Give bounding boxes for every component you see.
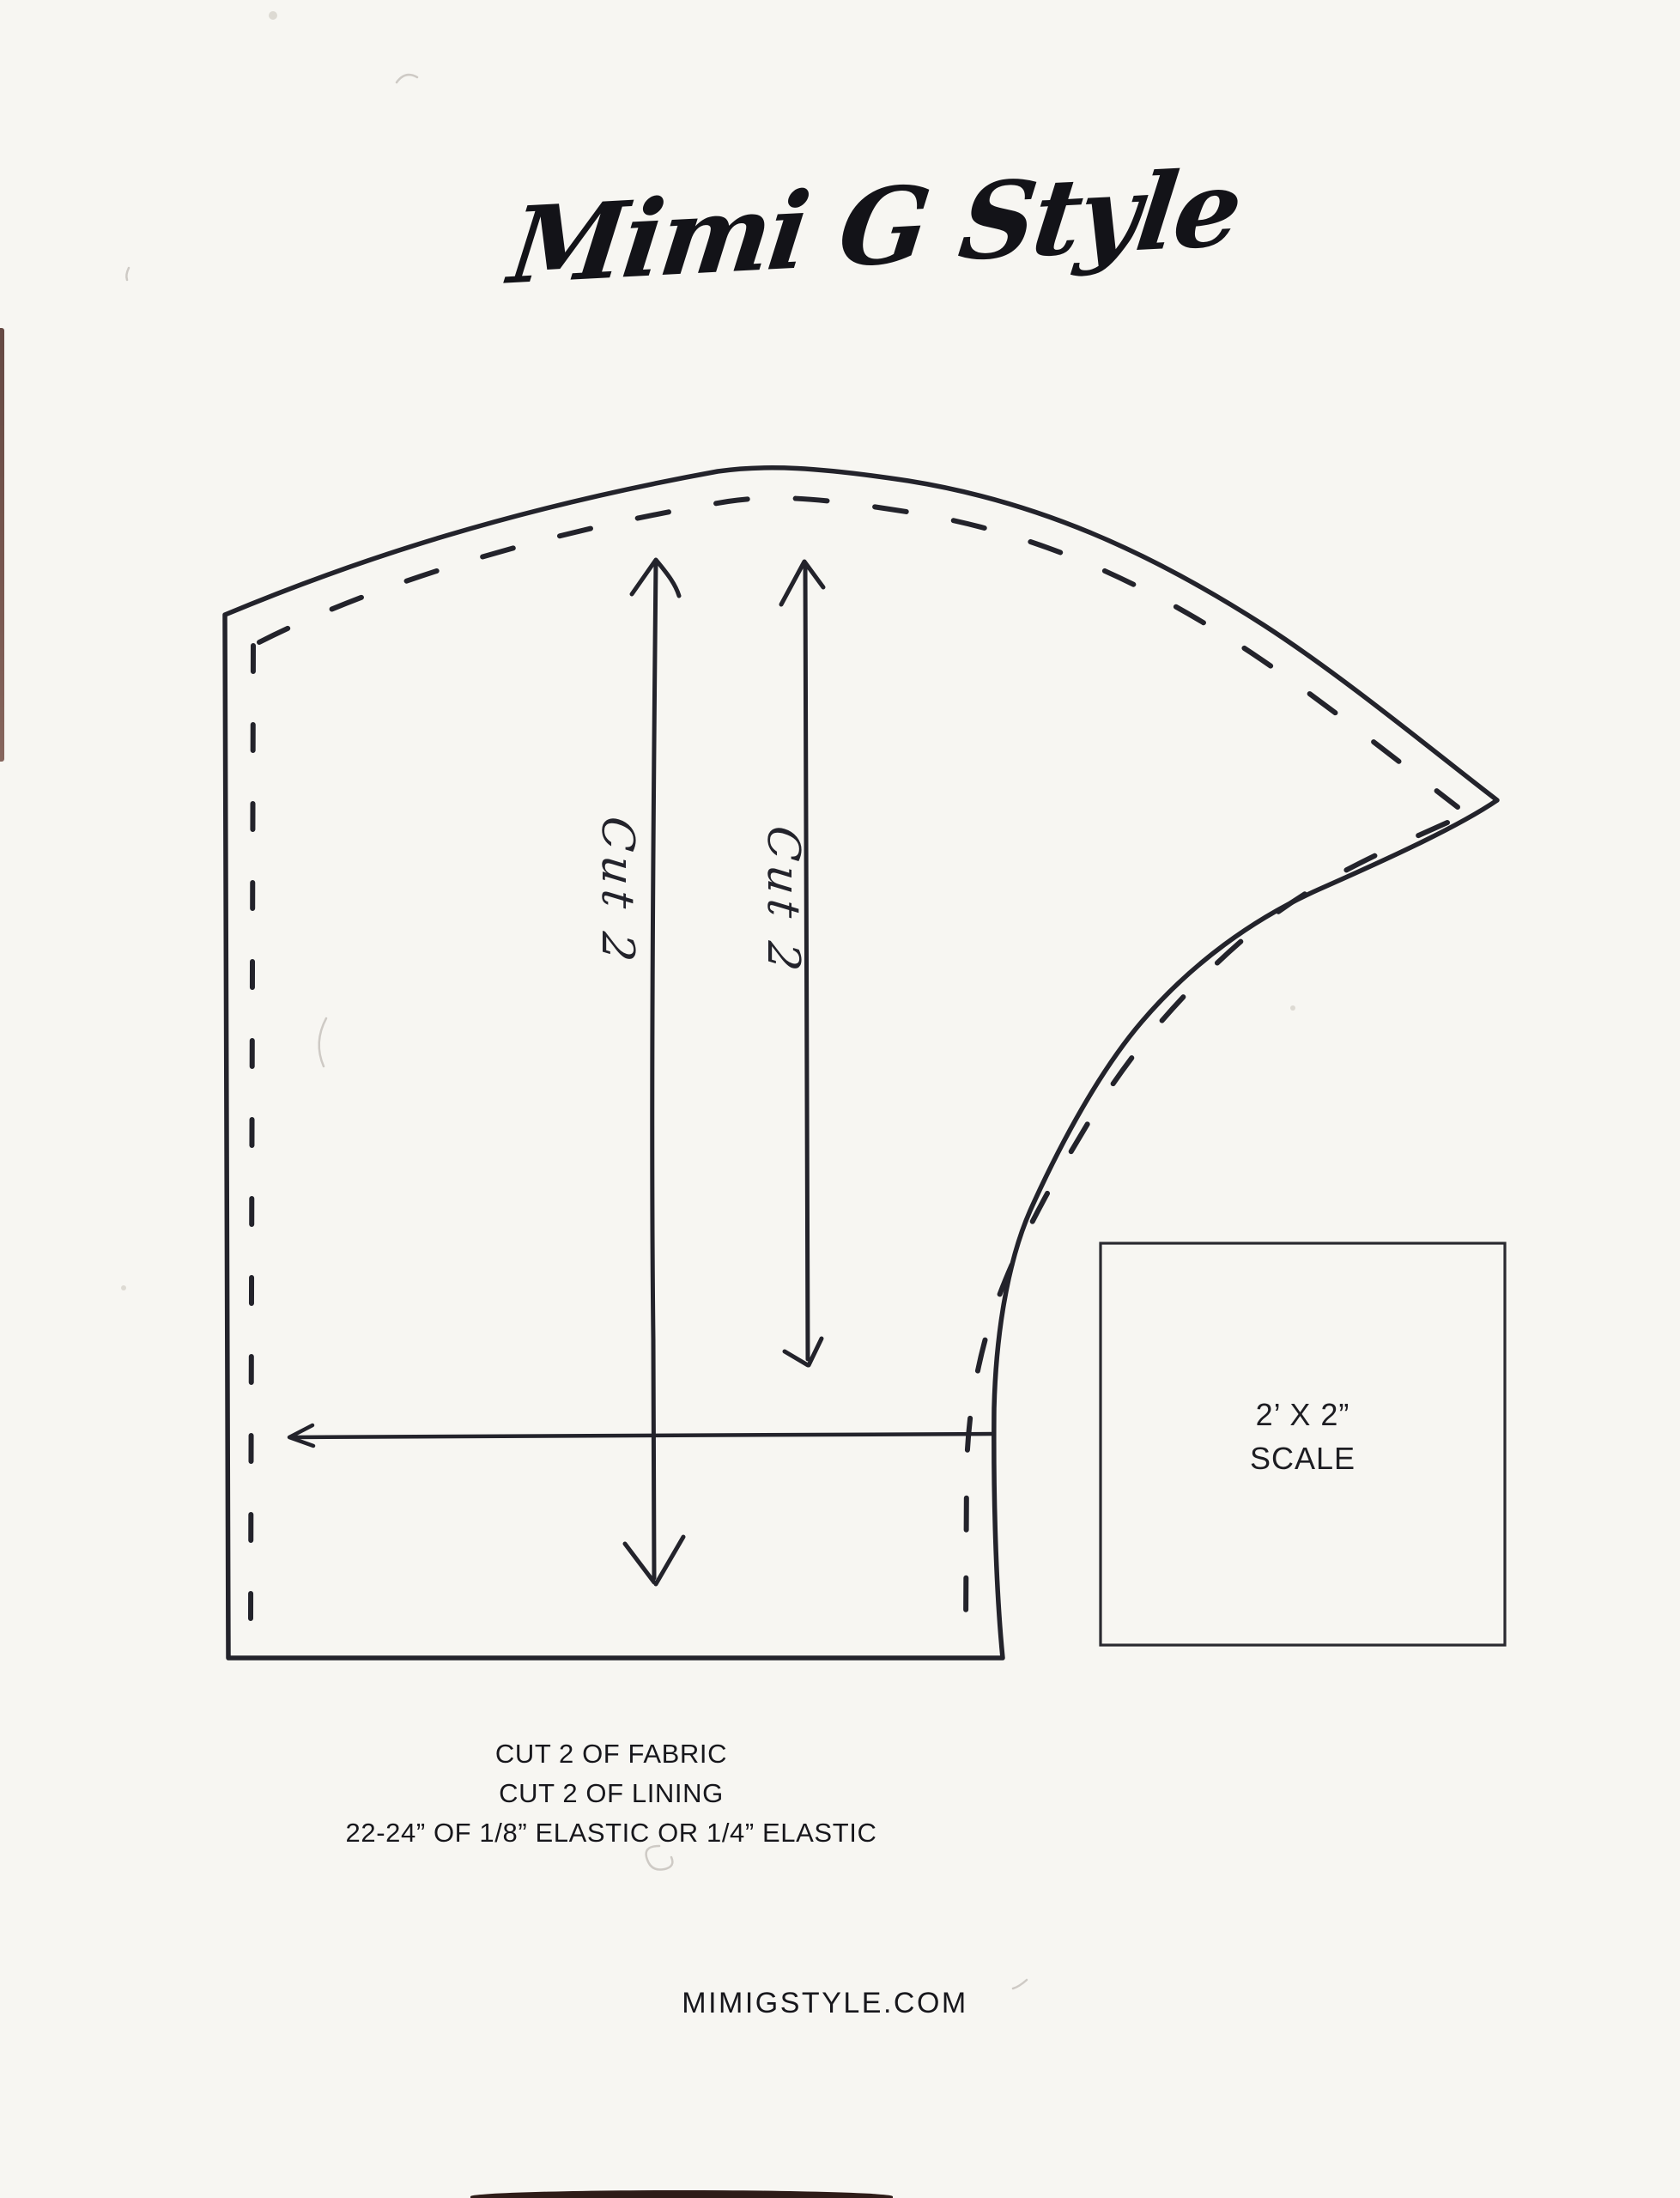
paper-speck-3 [121,1285,126,1290]
scan-artifact-bottom-edge [470,2190,893,2198]
site-footer: MIMIGSTYLE.COM [567,1987,1083,2020]
grainline-arrow-left-shaft [652,562,656,1578]
seam-allowance-top [259,498,1458,807]
sewing-pattern-page: Mimi G Style Cut 2 Cut 2 2’ X 2” SCALE C… [0,0,1680,2198]
instruction-line-lining: CUT 2 OF LINING [225,1774,998,1813]
fold-line [290,1434,994,1437]
grainline-label-right: Cut 2 [754,804,809,999]
pattern-drawing [0,0,1680,2198]
instruction-line-fabric: CUT 2 OF FABRIC [225,1734,998,1774]
cutting-instructions: CUT 2 OF FABRIC CUT 2 OF LINING 22-24” O… [225,1734,998,1853]
grainline-arrow-left [625,560,683,1584]
scan-artifact-left-edge [0,328,4,762]
seam-allowance-right [966,823,1447,1630]
scale-box-caption: 2’ X 2” SCALE [1101,1393,1505,1480]
pencil-marks [121,11,1295,1989]
seam-allowance-left [251,646,253,1618]
pencil-curl-top [397,75,417,82]
pencil-paren-mark [319,1018,326,1066]
pencil-tick-left [126,268,129,280]
scale-label: SCALE [1101,1436,1505,1480]
instruction-line-elastic: 22-24” OF 1/8” ELASTIC OR 1/4” ELASTIC [225,1813,998,1853]
scale-dimensions: 2’ X 2” [1101,1393,1505,1436]
paper-speck-1 [269,11,277,20]
grainline-arrow-right-head-bottom [785,1339,822,1365]
grainline-arrow-right-head-top [781,562,823,604]
grainline-label-left: Cut 2 [588,794,643,989]
paper-speck-2 [1290,1005,1295,1011]
